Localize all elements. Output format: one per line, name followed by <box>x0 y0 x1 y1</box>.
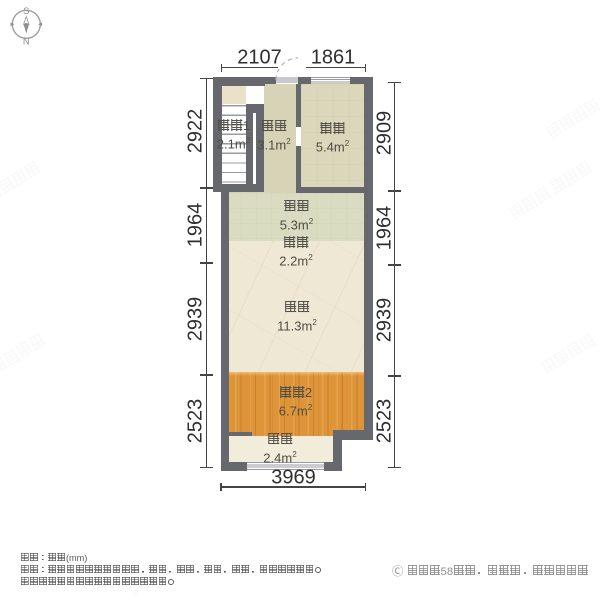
svg-text:N: N <box>23 36 30 47</box>
